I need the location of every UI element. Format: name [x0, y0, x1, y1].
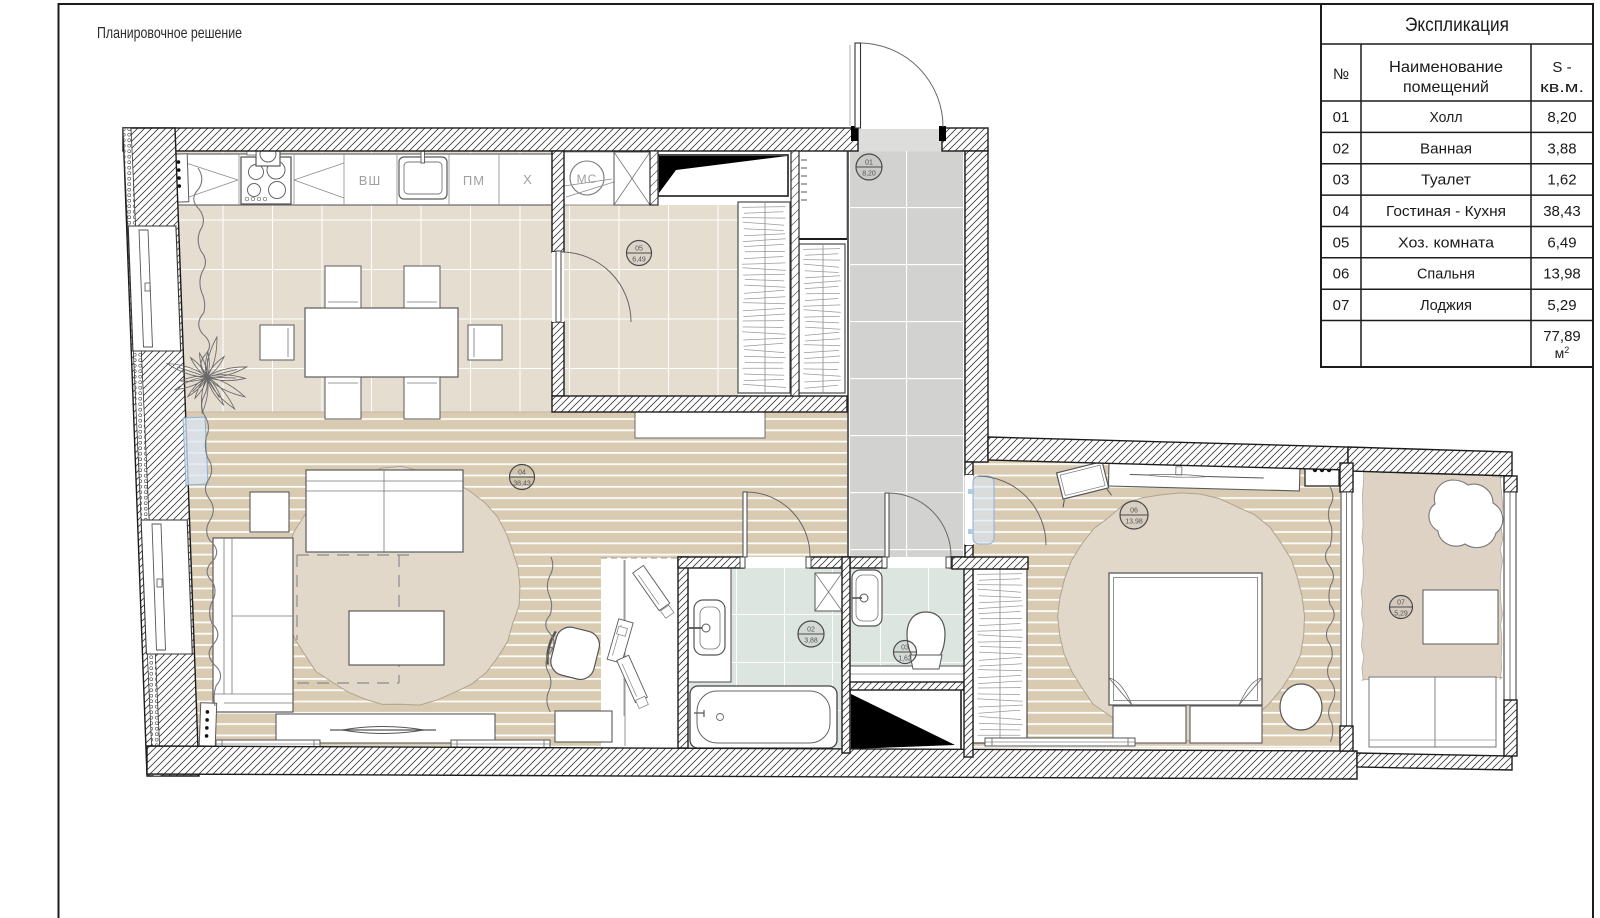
svg-text:6,49: 6,49	[632, 257, 646, 264]
svg-text:кв.м.: кв.м.	[1540, 79, 1584, 96]
svg-text:77,89: 77,89	[1543, 328, 1581, 345]
svg-text:Экспликация: Экспликация	[1405, 15, 1509, 36]
svg-text:05: 05	[635, 246, 643, 253]
svg-text:1,62: 1,62	[898, 656, 912, 663]
svg-text:38,43: 38,43	[1543, 203, 1581, 220]
svg-text:02: 02	[807, 627, 815, 634]
svg-text:Лоджия: Лоджия	[1420, 297, 1472, 314]
svg-text:Ванная: Ванная	[1420, 140, 1472, 157]
svg-text:Спальня: Спальня	[1417, 266, 1475, 283]
svg-text:06: 06	[1130, 508, 1138, 515]
svg-text:3,88: 3,88	[804, 638, 818, 645]
svg-text:04: 04	[518, 470, 526, 477]
svg-text:Туалет: Туалет	[1421, 172, 1471, 189]
svg-text:03: 03	[1333, 172, 1350, 189]
svg-text:Хоз. комната: Хоз. комната	[1398, 234, 1495, 251]
svg-text:02: 02	[1333, 140, 1350, 157]
svg-text:Х: Х	[523, 172, 533, 187]
svg-text:ПМ: ПМ	[463, 173, 485, 188]
svg-text:01: 01	[865, 160, 873, 167]
svg-text:№: №	[1333, 66, 1349, 83]
svg-text:8,20: 8,20	[1547, 109, 1576, 126]
svg-text:5,29: 5,29	[1547, 297, 1576, 314]
svg-text:Планировочное решение: Планировочное решение	[97, 25, 242, 42]
svg-text:04: 04	[1333, 203, 1350, 220]
svg-text:6,49: 6,49	[1547, 234, 1576, 251]
svg-text:38,43: 38,43	[513, 481, 531, 488]
svg-text:13,98: 13,98	[1543, 266, 1581, 283]
svg-text:3,88: 3,88	[1547, 140, 1576, 157]
svg-text:01: 01	[1333, 109, 1350, 126]
svg-text:06: 06	[1333, 266, 1350, 283]
svg-text:07: 07	[1333, 297, 1350, 314]
svg-text:1,62: 1,62	[1547, 172, 1576, 189]
svg-text:5,29: 5,29	[1394, 611, 1408, 618]
svg-text:Наименование: Наименование	[1389, 59, 1503, 76]
svg-text:13,98: 13,98	[1125, 519, 1143, 526]
svg-text:ВШ: ВШ	[359, 173, 382, 188]
svg-text:Гостиная - Кухня: Гостиная - Кухня	[1386, 203, 1506, 220]
svg-text:помещений: помещений	[1403, 79, 1489, 96]
svg-text:03: 03	[901, 645, 909, 652]
svg-text:07: 07	[1397, 600, 1405, 607]
svg-text:S -: S -	[1552, 59, 1571, 76]
svg-text:05: 05	[1333, 234, 1350, 251]
svg-text:МС: МС	[577, 172, 598, 186]
svg-text:Холл: Холл	[1430, 109, 1463, 126]
svg-text:8,20: 8,20	[862, 171, 876, 178]
